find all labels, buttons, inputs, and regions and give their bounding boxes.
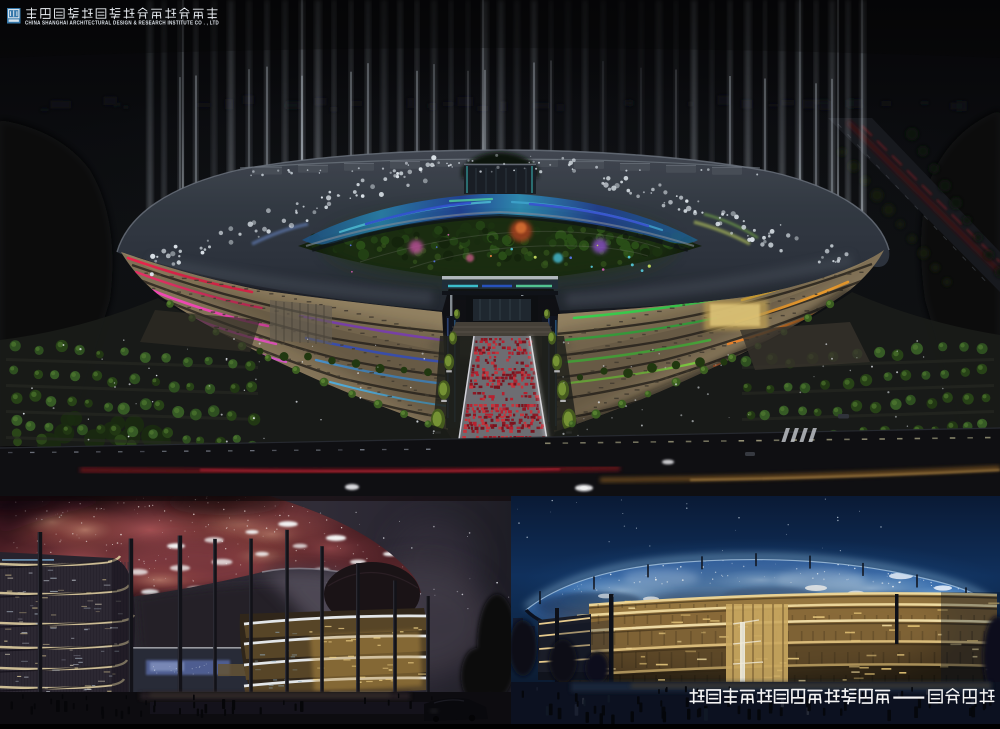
svg-text:CHINA SHANGHAI ARCHITECTURAL D: CHINA SHANGHAI ARCHITECTURAL DESIGN & RE… [25, 21, 219, 27]
